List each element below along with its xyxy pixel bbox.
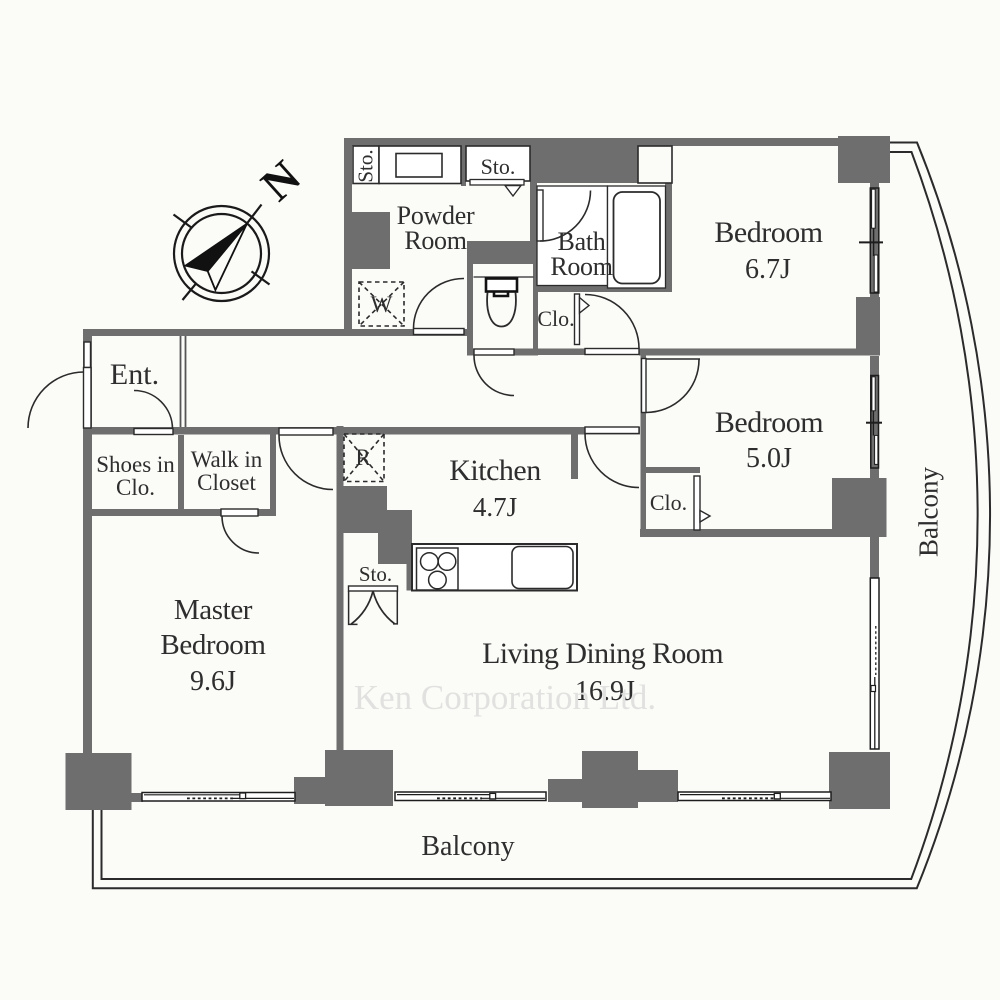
svg-text:Balcony: Balcony	[421, 831, 514, 862]
svg-text:Sto.: Sto.	[359, 562, 392, 586]
svg-text:Living Dining Room: Living Dining Room	[482, 637, 723, 670]
svg-text:Bedroom: Bedroom	[160, 629, 266, 661]
svg-text:Clo.: Clo.	[650, 490, 687, 515]
svg-text:Bedroom: Bedroom	[714, 216, 822, 249]
svg-text:6.7J: 6.7J	[745, 254, 791, 285]
svg-text:Room: Room	[404, 226, 466, 255]
svg-text:R: R	[355, 445, 371, 470]
svg-text:5.0J: 5.0J	[746, 443, 792, 474]
svg-text:Room: Room	[550, 252, 612, 281]
svg-text:Master: Master	[174, 594, 253, 626]
svg-text:Ken Corporation Ltd.: Ken Corporation Ltd.	[354, 678, 656, 717]
svg-text:9.6J: 9.6J	[190, 666, 236, 697]
svg-text:Shoes in: Shoes in	[96, 452, 175, 477]
svg-text:Kitchen: Kitchen	[449, 454, 541, 487]
svg-text:Closet: Closet	[197, 470, 256, 495]
svg-text:Sto.: Sto.	[481, 154, 516, 179]
svg-text:Bedroom: Bedroom	[715, 406, 823, 439]
svg-text:Clo.: Clo.	[537, 306, 574, 331]
svg-text:4.7J: 4.7J	[473, 492, 517, 522]
svg-text:Balcony: Balcony	[914, 467, 944, 557]
svg-text:Walk in: Walk in	[191, 447, 263, 472]
svg-text:Sto.: Sto.	[353, 149, 377, 182]
svg-text:Clo.: Clo.	[116, 475, 155, 500]
svg-text:W: W	[371, 292, 393, 317]
svg-text:Ent.: Ent.	[110, 358, 159, 391]
